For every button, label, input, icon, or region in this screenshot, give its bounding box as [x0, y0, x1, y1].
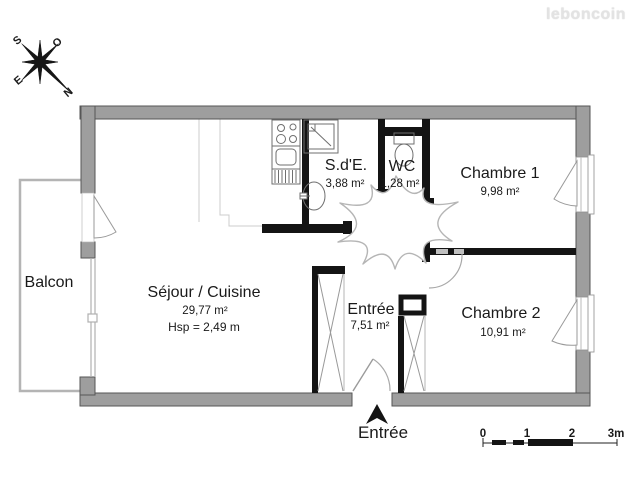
- room-label-wc: WC: [389, 158, 416, 175]
- room-area-wc: 1,28 m²: [381, 178, 420, 190]
- window-chambre1: [554, 155, 594, 214]
- room-label-balcon: Balcon: [25, 274, 74, 291]
- scale-tick-1: 1: [524, 428, 531, 440]
- kitchen-cooktop: [272, 120, 300, 146]
- outer-walls: [80, 106, 590, 406]
- room-area-sde: 3,88 m²: [326, 178, 365, 190]
- scale-tick-3m: 3m: [608, 428, 625, 440]
- entrance-label: Entrée: [358, 423, 408, 442]
- entrance-door: [353, 359, 390, 391]
- compass-letter-o: O: [51, 35, 66, 50]
- room-area-sejour: 29,77 m²: [182, 305, 228, 317]
- compass-letter-s: S: [11, 34, 24, 48]
- room-area-chambre2: 10,91 m²: [480, 327, 526, 339]
- room-label-sejour: Séjour / Cuisine: [148, 284, 261, 301]
- floorplan-page: leboncoin: [0, 0, 640, 480]
- scale-bar: 0 1 2 3m: [480, 428, 625, 447]
- compass-star: [22, 40, 71, 93]
- compass-rose: S O E N: [11, 34, 76, 100]
- technical-shaft: [401, 297, 424, 313]
- room-area-entree: 7,51 m²: [351, 320, 390, 332]
- room-label-chambre2: Chambre 2: [461, 305, 540, 322]
- shower: [304, 120, 338, 153]
- scale-tick-2: 2: [569, 428, 575, 440]
- closet-left: [318, 274, 344, 391]
- closet-right: [404, 316, 425, 391]
- window-chambre2: [552, 295, 594, 352]
- compass-letter-n: N: [62, 86, 76, 100]
- compass-letter-e: E: [12, 74, 25, 88]
- kitchen-sink: [272, 146, 300, 169]
- bay-window-sejour: [88, 258, 97, 377]
- scale-tick-0: 0: [480, 428, 486, 440]
- room-label-entree: Entrée: [347, 301, 394, 318]
- chambre2-door: [429, 254, 462, 288]
- kitchen-zone-lines: [199, 119, 262, 226]
- balcony-door: [82, 193, 116, 242]
- kitchen-drainer: [272, 169, 300, 184]
- room-label-chambre1: Chambre 1: [460, 165, 539, 182]
- room-ceiling-sejour: Hsp = 2,49 m: [168, 320, 240, 334]
- entrance-arrow: [366, 404, 388, 424]
- floorplan-drawing: Balcon Séjour / Cuisine 29,77 m² Hsp = 2…: [0, 0, 640, 480]
- room-area-chambre1: 9,98 m²: [481, 186, 520, 198]
- room-label-sde: S.d'E.: [325, 157, 367, 174]
